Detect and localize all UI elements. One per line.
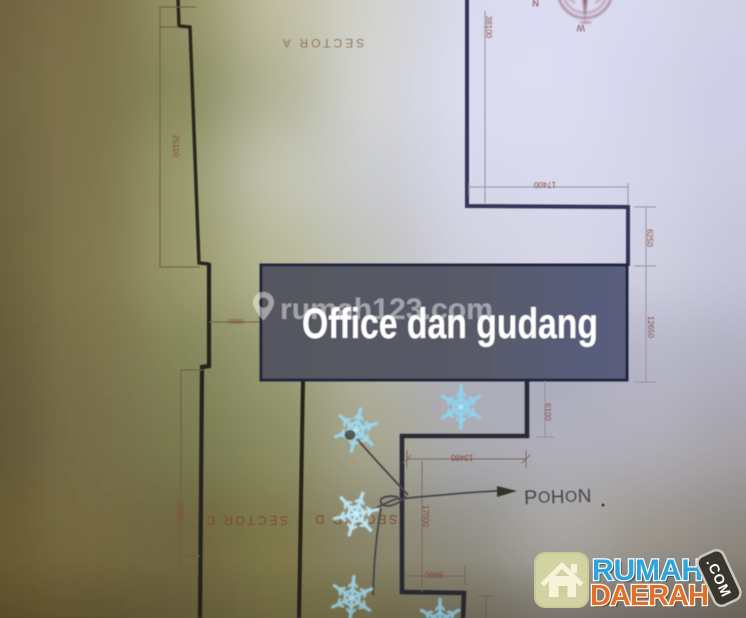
svg-text:17400: 17400 (533, 180, 556, 189)
svg-text:13480: 13480 (450, 453, 473, 462)
svg-text:25100: 25100 (171, 135, 180, 158)
svg-text:W: W (576, 23, 585, 33)
svg-text:38100: 38100 (484, 16, 493, 39)
svg-text:6250: 6250 (645, 229, 654, 247)
svg-text:SECTOR A: SECTOR A (280, 36, 364, 50)
svg-text:Office dan gudang: Office dan gudang (302, 300, 598, 348)
svg-text:12650: 12650 (646, 316, 655, 339)
svg-text:6100: 6100 (543, 403, 552, 421)
svg-text:17000: 17000 (421, 505, 430, 528)
svg-text:N: N (532, 0, 539, 8)
svg-text:3200: 3200 (176, 503, 185, 521)
svg-text:DAERAH: DAERAH (590, 580, 708, 612)
svg-text:SECTOR C: SECTOR C (204, 513, 288, 527)
svg-text:POHON: POHON (524, 485, 593, 509)
svg-text:0880: 0880 (228, 317, 244, 324)
